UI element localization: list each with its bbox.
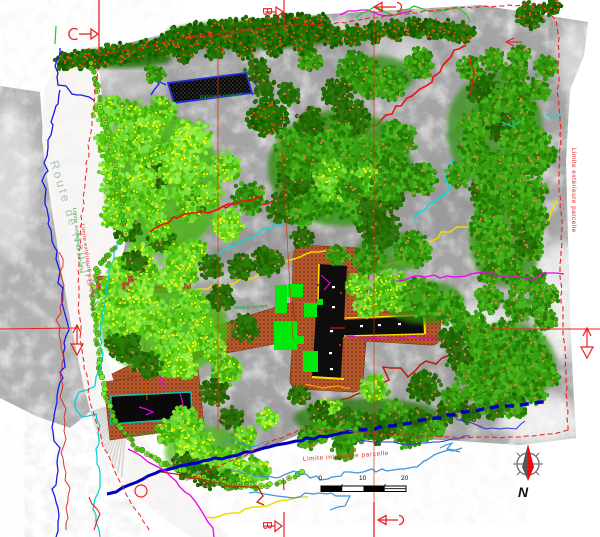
svg-text:B: B [260, 521, 275, 530]
svg-text:B: B [260, 7, 275, 16]
svg-text:Limite extérieure parcelle: Limite extérieure parcelle [570, 148, 577, 233]
svg-text:N: N [518, 484, 529, 500]
svg-text:0: 0 [319, 475, 323, 482]
svg-text:10: 10 [359, 475, 367, 482]
svg-text:20: 20 [401, 475, 409, 482]
